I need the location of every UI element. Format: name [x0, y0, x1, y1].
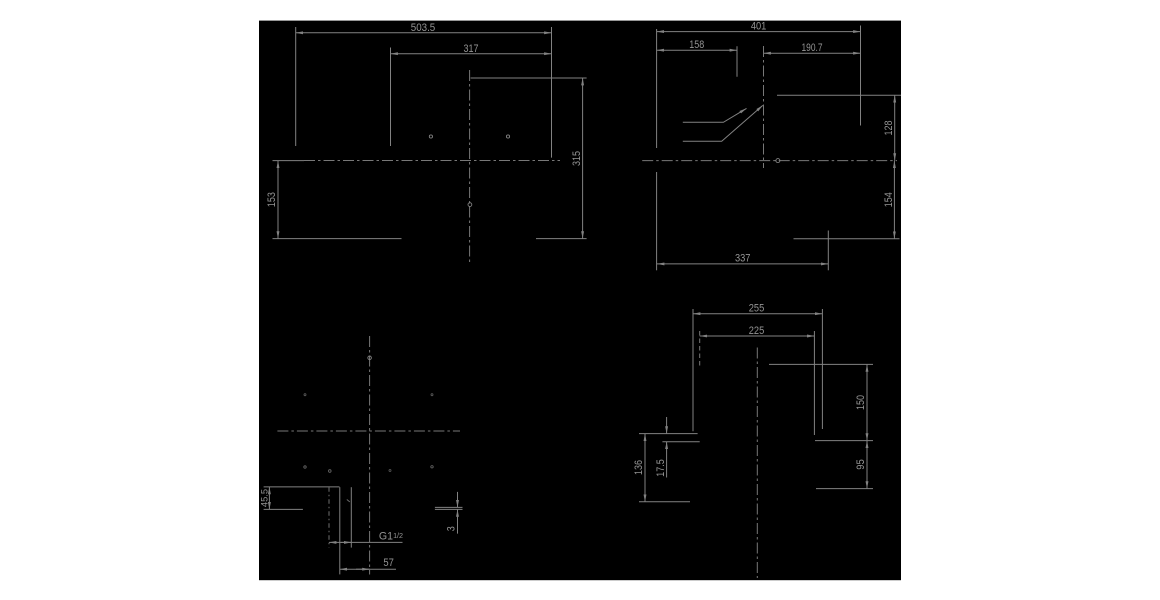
svg-text:153: 153 — [266, 192, 278, 207]
svg-text:95: 95 — [855, 459, 867, 470]
svg-text:225: 225 — [749, 325, 765, 337]
svg-text:150: 150 — [855, 395, 867, 410]
svg-text:3: 3 — [445, 526, 457, 531]
svg-text:45.5: 45.5 — [259, 489, 270, 507]
svg-text:128: 128 — [883, 120, 895, 135]
svg-text:255: 255 — [749, 303, 765, 315]
svg-text:57: 57 — [383, 557, 394, 569]
svg-text:503.5: 503.5 — [411, 22, 436, 34]
svg-text:315: 315 — [571, 151, 583, 166]
svg-text:190.7: 190.7 — [802, 42, 823, 54]
svg-text:17.5: 17.5 — [655, 459, 667, 477]
svg-text:154: 154 — [883, 192, 895, 207]
svg-text:317: 317 — [464, 43, 479, 55]
svg-text:337: 337 — [735, 253, 751, 265]
svg-text:401: 401 — [751, 20, 767, 32]
svg-text:158: 158 — [689, 39, 704, 51]
svg-text:136: 136 — [633, 460, 645, 475]
